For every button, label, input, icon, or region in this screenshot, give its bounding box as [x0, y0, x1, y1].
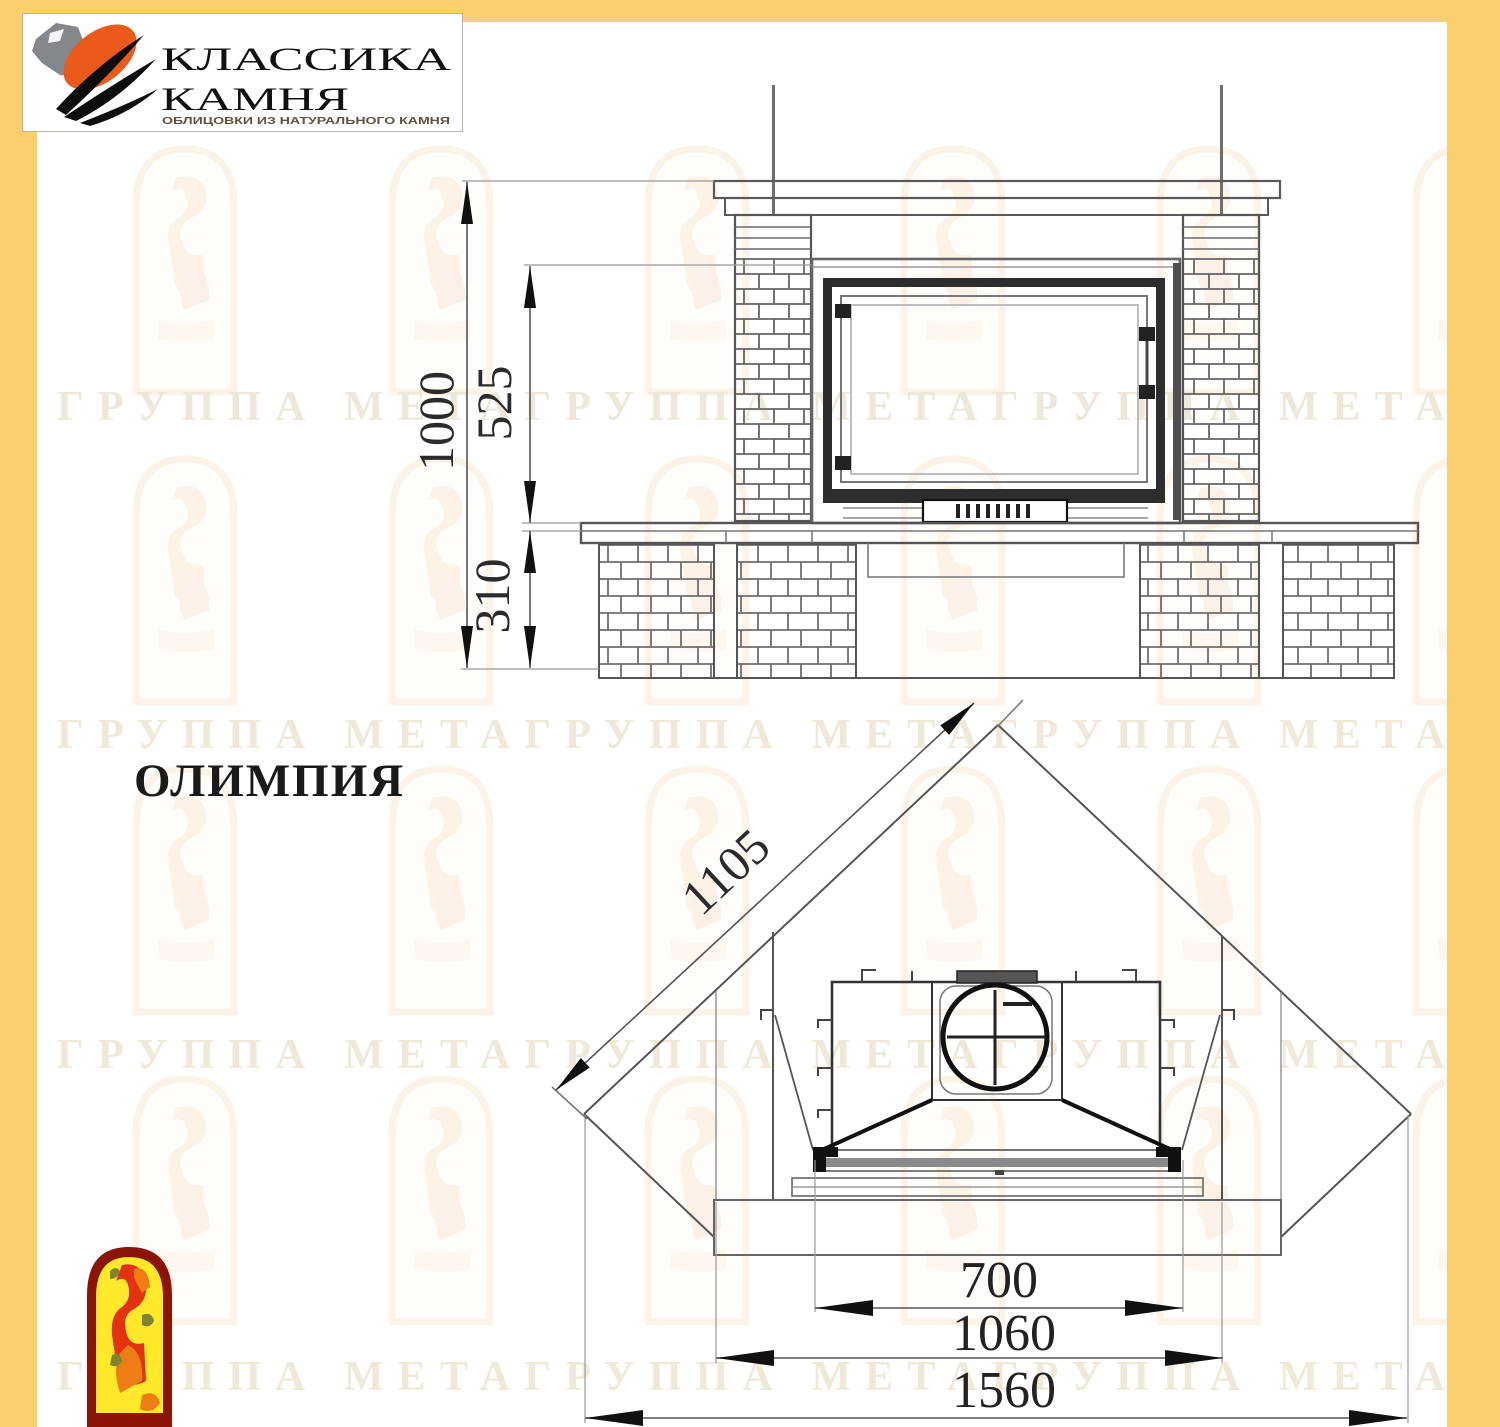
svg-text:1000: 1000 [408, 371, 464, 471]
svg-text:1060: 1060 [952, 1305, 1056, 1362]
svg-text:ОЛИМПИЯ: ОЛИМПИЯ [134, 755, 405, 807]
svg-text:1560: 1560 [952, 1362, 1056, 1419]
svg-text:1105: 1105 [670, 818, 780, 926]
svg-text:525: 525 [466, 366, 522, 441]
svg-text:310: 310 [464, 559, 520, 634]
svg-text:700: 700 [960, 1252, 1038, 1309]
